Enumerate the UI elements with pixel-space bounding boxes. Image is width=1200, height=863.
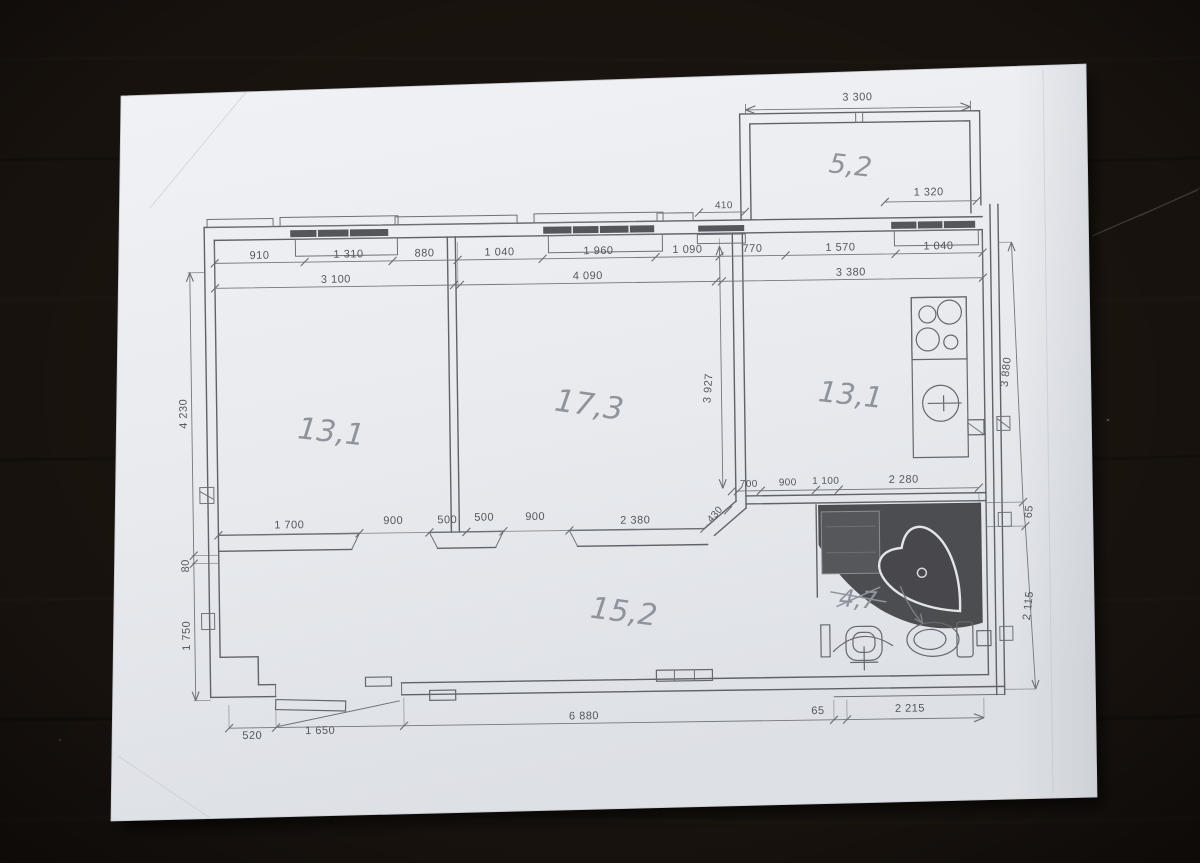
- room-label-left: 13,1: [296, 411, 366, 453]
- dim-1650: 1 650: [305, 725, 335, 737]
- dim-1040-b: 1 040: [923, 240, 953, 252]
- dim-1100: 1 100: [812, 476, 839, 487]
- dim-4090: 4 090: [573, 270, 603, 282]
- dim-770: 770: [742, 243, 762, 255]
- room-label-balcony: 5,2: [827, 148, 873, 183]
- dim-500-a: 500: [437, 514, 457, 526]
- dim-2280: 2 280: [889, 474, 919, 486]
- dim-65-bottom: 65: [811, 705, 824, 717]
- dim-3100: 3 100: [321, 273, 351, 285]
- dim-3380: 3 380: [836, 266, 866, 278]
- photo-of-floor-plan: 910 1 310 880 1 040 1 960 1 090 770 1 57…: [0, 0, 1200, 863]
- dim-80: 80: [180, 559, 192, 572]
- dim-6880: 6 880: [569, 710, 599, 722]
- dim-3300: 3 300: [842, 91, 872, 103]
- floor-plan-photo: 910 1 310 880 1 040 1 960 1 090 770 1 57…: [0, 0, 1200, 863]
- dim-1310: 1 310: [333, 248, 363, 260]
- dim-410: 410: [715, 200, 733, 211]
- dim-3927: 3 927: [701, 373, 715, 404]
- dim-65-right: 65: [1023, 504, 1036, 518]
- dim-1040-a: 1 040: [484, 246, 514, 258]
- paper-sheet: [111, 55, 1105, 832]
- dim-1570: 1 570: [825, 241, 855, 253]
- dim-880: 880: [415, 247, 435, 259]
- dim-900-b: 900: [525, 511, 545, 523]
- dim-1320: 1 320: [914, 186, 944, 198]
- dim-2380: 2 380: [620, 514, 650, 526]
- dim-900-c: 900: [779, 477, 797, 488]
- dim-910: 910: [250, 250, 270, 262]
- dim-1090: 1 090: [672, 244, 702, 256]
- dim-2215: 2 215: [895, 702, 925, 714]
- dim-1960: 1 960: [583, 245, 613, 257]
- dim-1700: 1 700: [274, 519, 304, 531]
- dim-520: 520: [242, 730, 262, 742]
- dim-500-b: 500: [474, 511, 494, 523]
- dim-1750: 1 750: [181, 621, 193, 651]
- room-label-kitchen: 13,1: [817, 374, 885, 415]
- dim-900-a: 900: [383, 515, 403, 527]
- washing-machine-icon: [821, 511, 880, 574]
- dim-700: 700: [740, 479, 758, 490]
- dim-4230: 4 230: [178, 399, 190, 429]
